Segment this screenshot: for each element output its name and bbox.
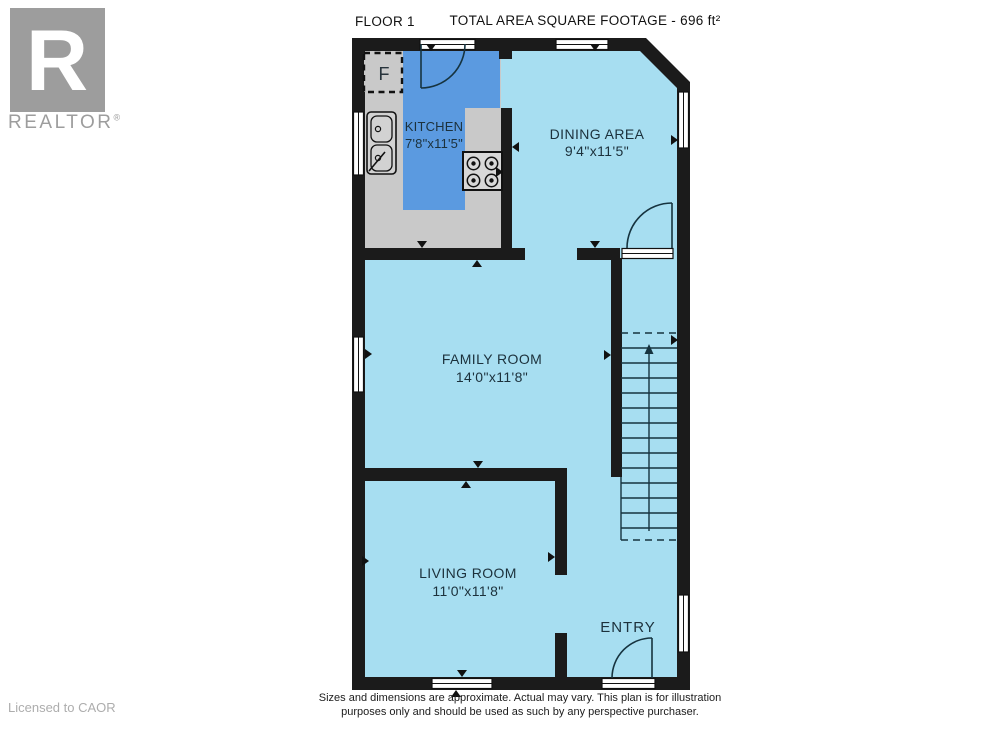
living-dimensions: 11'0"x11'8" <box>432 583 503 599</box>
living-label: LIVING ROOM <box>419 565 517 581</box>
license-text: Licensed to CAOR <box>8 700 116 715</box>
kitchen-door-jamb <box>499 50 512 59</box>
disclaimer-line1: Sizes and dimensions are approximate. Ac… <box>319 692 722 706</box>
kitchen-label: KITCHEN <box>405 119 463 134</box>
fridge-label: F <box>379 64 390 84</box>
floor-plan-svg: F <box>0 0 1000 741</box>
dining-dimensions: 9'4"x11'5" <box>565 143 629 159</box>
family-bottom-wall <box>352 468 567 481</box>
disclaimer: Sizes and dimensions are approximate. Ac… <box>319 692 722 719</box>
entry-label: ENTRY <box>600 619 656 636</box>
fridge-box: F <box>364 53 402 92</box>
dining-label: DINING AREA <box>550 126 645 142</box>
kitchen-bottom-wall <box>352 248 525 260</box>
family-dimensions: 14'0"x11'8" <box>456 369 528 385</box>
disclaimer-line2: purposes only and should be used as such… <box>319 706 722 720</box>
sink-icon <box>367 112 396 174</box>
family-label: FAMILY ROOM <box>442 351 542 367</box>
kitchen-dimensions: 7'8"x11'5" <box>405 136 463 151</box>
living-right-wall-lower <box>555 633 567 690</box>
stairwell-wall <box>611 258 622 477</box>
living-right-wall-upper <box>555 468 567 575</box>
floor-plan-page: R REALTOR® FLOOR 1 TOTAL AREA SQUARE FOO… <box>0 0 1000 741</box>
